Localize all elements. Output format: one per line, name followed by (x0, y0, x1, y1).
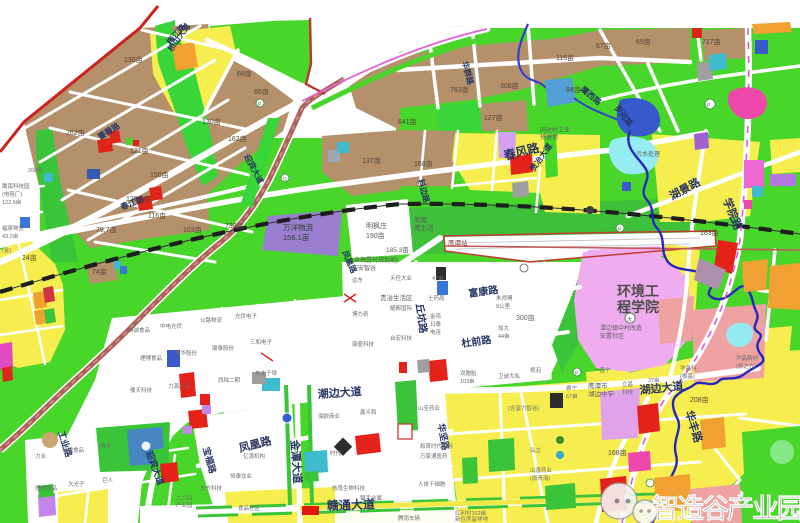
svg-text:智造谷产业园: 智造谷产业园 (652, 494, 800, 523)
